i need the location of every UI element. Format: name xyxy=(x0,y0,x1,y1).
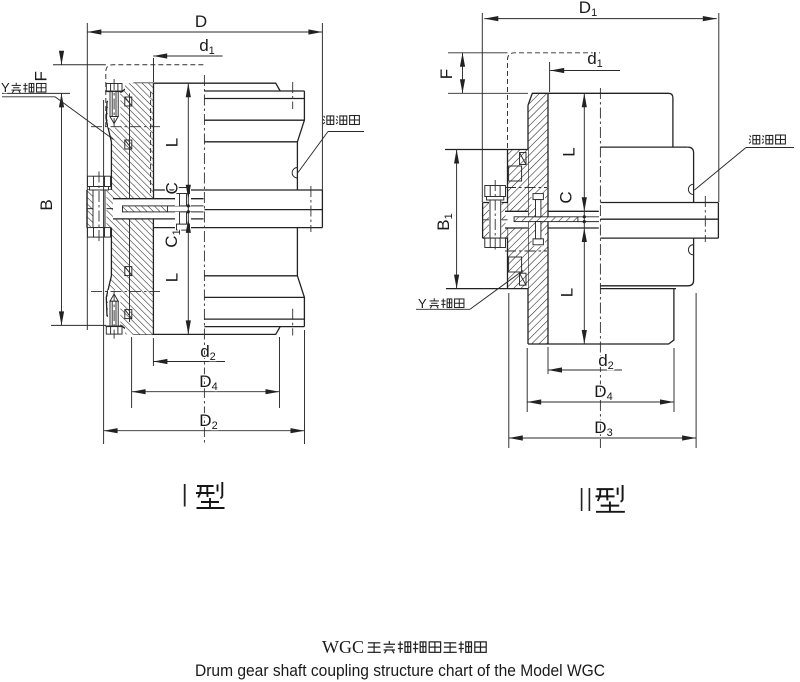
svg-text:Y: Y xyxy=(1,80,10,95)
svg-text:L: L xyxy=(163,273,182,282)
svg-text:D: D xyxy=(195,12,207,31)
svg-text:Y: Y xyxy=(418,296,427,311)
svg-text:F: F xyxy=(32,71,51,81)
svg-text:C: C xyxy=(557,191,576,203)
svg-text:WGC: WGC xyxy=(322,637,364,657)
svg-text:L: L xyxy=(560,147,579,156)
svg-text:Drum gear shaft coupling struc: Drum gear shaft coupling structure chart… xyxy=(195,662,605,680)
svg-text:B: B xyxy=(37,199,56,210)
svg-text:L: L xyxy=(558,288,577,297)
svg-text:L: L xyxy=(163,138,182,147)
svg-text:F: F xyxy=(437,69,456,79)
svg-text:C: C xyxy=(163,182,182,194)
